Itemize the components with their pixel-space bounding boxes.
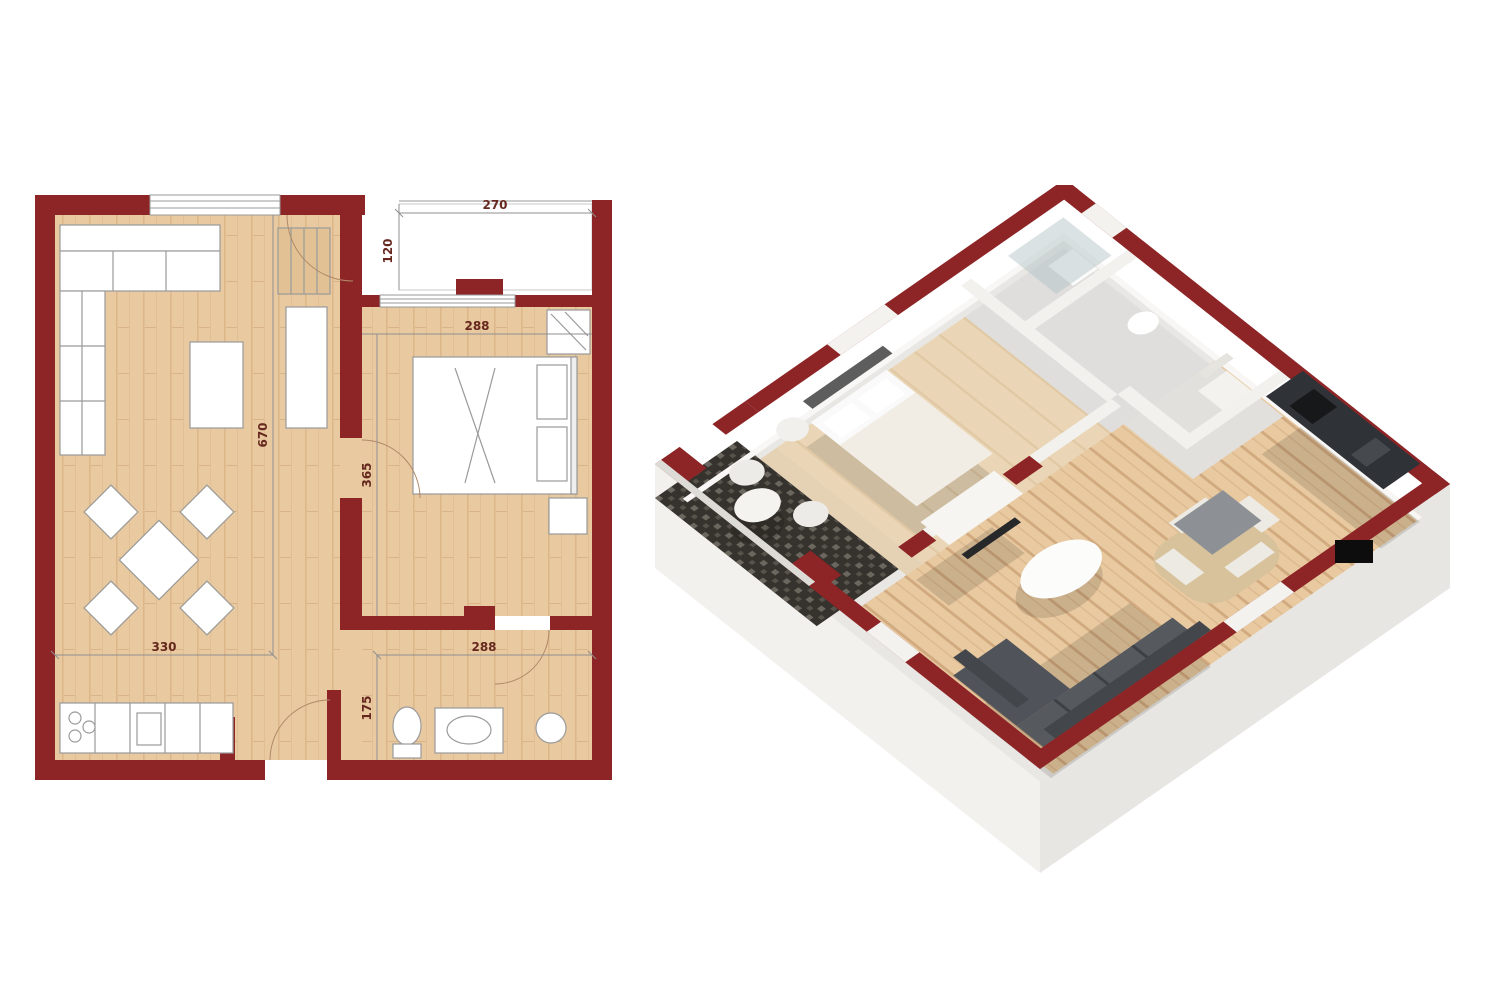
redacted-watermark <box>1335 540 1373 563</box>
dim-bath-depth: 175 <box>360 695 374 720</box>
wall-top-b <box>280 195 365 215</box>
wall-left <box>35 195 55 780</box>
floor-plan-page: 270 120 288 365 670 330 288 175 <box>0 0 1500 1000</box>
dim-balcony-width: 270 <box>482 198 507 212</box>
stove-burner <box>69 730 81 742</box>
hall-floor <box>340 630 362 760</box>
wall-top-joint <box>340 215 362 295</box>
floor-plan-2d: 270 120 288 365 670 330 288 175 <box>35 168 625 800</box>
stove-burner <box>69 712 81 724</box>
wall-top-a <box>35 195 150 215</box>
dim-bedroom-depth: 365 <box>360 462 374 487</box>
dim-balcony-depth: 120 <box>381 238 395 263</box>
wall-balcony-right <box>592 200 612 290</box>
washing-machine <box>536 713 566 743</box>
stove-burner <box>83 721 95 733</box>
wall-right <box>592 279 612 780</box>
wall-interior-upper <box>340 295 362 438</box>
dim-living-width: 330 <box>151 640 176 654</box>
kitchen-counter <box>60 703 233 753</box>
bedroom-window <box>380 295 515 307</box>
ottoman <box>190 342 243 428</box>
wall-bedroom-top-b <box>515 295 592 307</box>
bedroom-door-floor <box>340 438 362 498</box>
balcony-floor <box>399 204 592 290</box>
wall-bath-doorframe <box>464 606 495 630</box>
headboard <box>571 357 577 494</box>
toilet <box>393 707 421 745</box>
dim-bedroom-width: 288 <box>464 319 489 333</box>
pillow <box>537 427 567 481</box>
bath-sink <box>447 716 491 744</box>
pillow <box>537 365 567 419</box>
wall-bedroom-top-a <box>362 295 380 307</box>
wall-interior-lower <box>340 498 362 630</box>
wall-bottom-a <box>35 760 265 780</box>
wall-bath-b <box>550 616 592 630</box>
living-window <box>150 195 280 215</box>
bed <box>413 357 577 494</box>
nightstand <box>549 498 587 534</box>
floor-plan-3d <box>635 185 1465 885</box>
kitchen-sink <box>137 713 161 745</box>
dim-living-depth: 670 <box>256 422 270 447</box>
toilet-tank <box>393 744 421 758</box>
dim-bath-width: 288 <box>471 640 496 654</box>
tv-cabinet <box>286 307 327 428</box>
wall-bottom-b <box>327 760 612 780</box>
